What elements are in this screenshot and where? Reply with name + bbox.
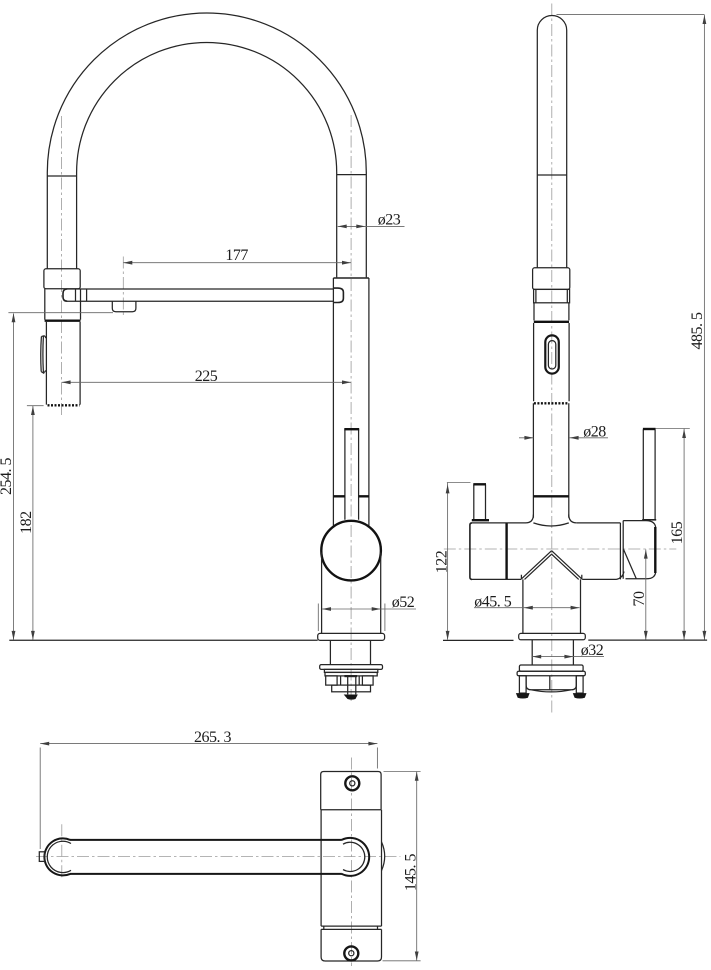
svg-text:70: 70 xyxy=(631,591,648,607)
svg-text:ø32: ø32 xyxy=(581,642,604,659)
svg-text:265. 3: 265. 3 xyxy=(194,729,232,746)
svg-text:122: 122 xyxy=(433,550,450,573)
svg-text:145. 5: 145. 5 xyxy=(403,854,420,892)
svg-text:165: 165 xyxy=(669,521,686,544)
svg-text:177: 177 xyxy=(225,247,248,264)
svg-text:ø28: ø28 xyxy=(583,424,606,441)
svg-text:ø23: ø23 xyxy=(378,211,401,228)
svg-text:485. 5: 485. 5 xyxy=(689,312,706,350)
svg-text:254. 5: 254. 5 xyxy=(0,458,15,496)
svg-text:182: 182 xyxy=(18,511,35,534)
svg-text:225: 225 xyxy=(195,368,218,385)
svg-text:ø45. 5: ø45. 5 xyxy=(474,594,512,611)
svg-text:ø52: ø52 xyxy=(392,594,415,611)
